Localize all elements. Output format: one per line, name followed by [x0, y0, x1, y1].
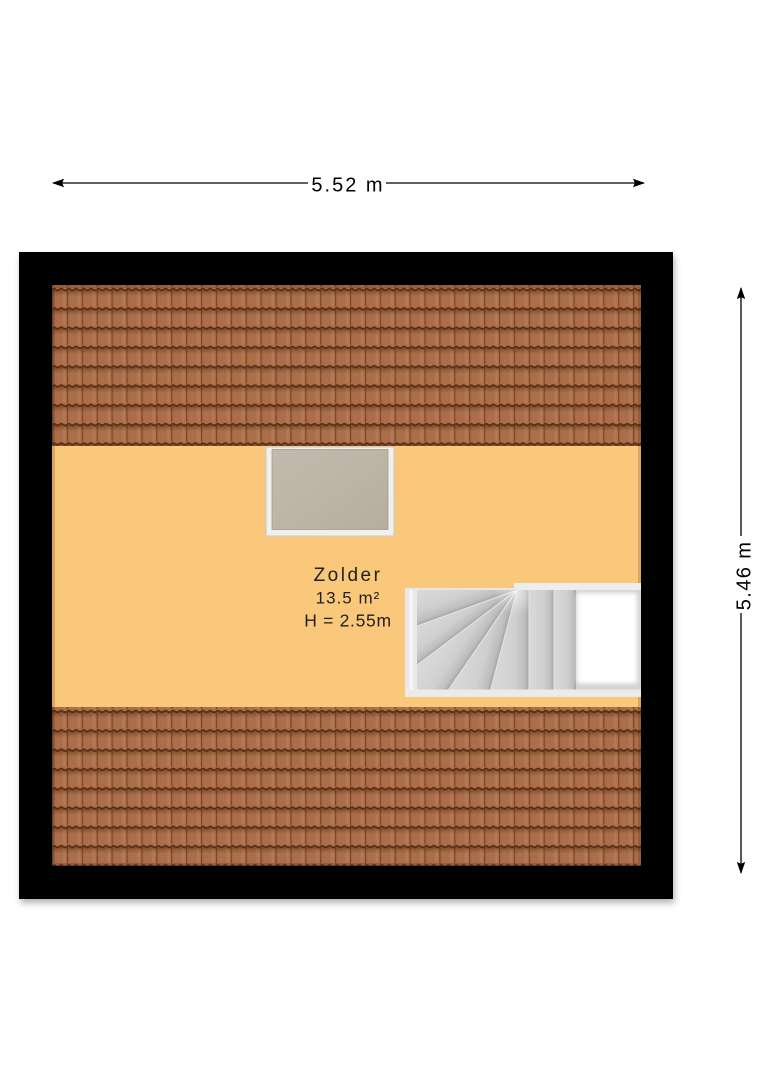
svg-text:Zolder: Zolder	[314, 565, 383, 586]
svg-text:H = 2.55m: H = 2.55m	[304, 611, 392, 631]
svg-text:13.5 m²: 13.5 m²	[316, 589, 381, 608]
svg-text:5.46 m: 5.46 m	[734, 541, 756, 611]
svg-text:5.52 m: 5.52 m	[311, 175, 384, 197]
